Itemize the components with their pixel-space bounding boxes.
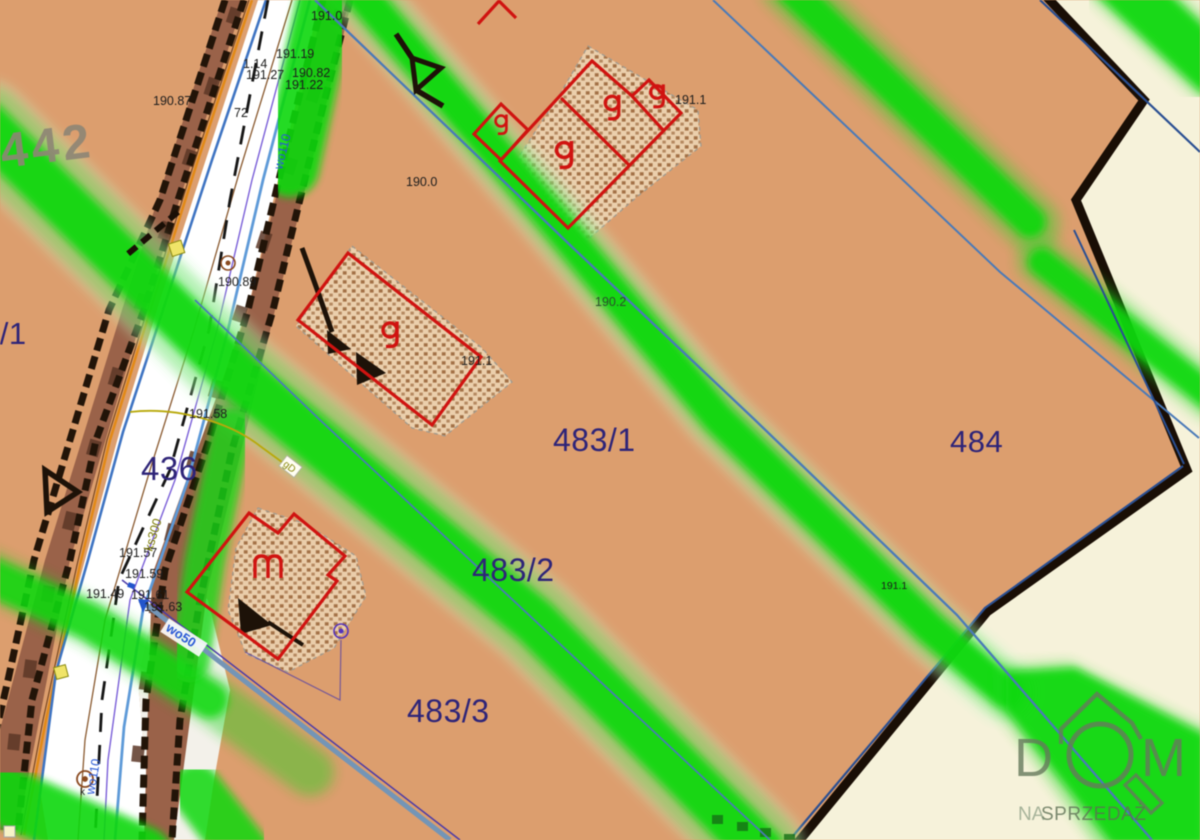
svg-text:190.2: 190.2 <box>595 295 626 309</box>
svg-text:191.49: 191.49 <box>86 587 124 601</box>
svg-text:191.0: 191.0 <box>311 9 342 23</box>
svg-text:191.59: 191.59 <box>125 567 163 581</box>
svg-text:191.1: 191.1 <box>881 580 907 592</box>
svg-text:191.58: 191.58 <box>189 407 227 421</box>
svg-text:191.63: 191.63 <box>144 600 182 614</box>
svg-text:190.0: 190.0 <box>406 175 437 189</box>
svg-text:191.27: 191.27 <box>246 68 284 82</box>
svg-text:191.22: 191.22 <box>285 78 323 92</box>
svg-text:M: M <box>1141 728 1186 788</box>
svg-text:72: 72 <box>234 106 248 120</box>
svg-text:SPRZEDAŻ: SPRZEDAŻ <box>1041 804 1146 825</box>
svg-text:436: 436 <box>141 450 198 487</box>
svg-text:190.87: 190.87 <box>153 94 191 108</box>
svg-text:191.1: 191.1 <box>461 354 492 368</box>
svg-text:D: D <box>1014 728 1053 788</box>
svg-text:190.89: 190.89 <box>218 275 256 289</box>
svg-text:442: 442 <box>0 114 97 179</box>
svg-text:2/1: 2/1 <box>0 316 27 351</box>
svg-text:484: 484 <box>950 424 1003 459</box>
svg-text:483/2: 483/2 <box>472 552 555 588</box>
svg-text:191.19: 191.19 <box>276 47 314 61</box>
svg-text:483/3: 483/3 <box>407 693 490 729</box>
svg-text:483/1: 483/1 <box>553 422 636 458</box>
svg-text:191.1: 191.1 <box>675 93 706 107</box>
